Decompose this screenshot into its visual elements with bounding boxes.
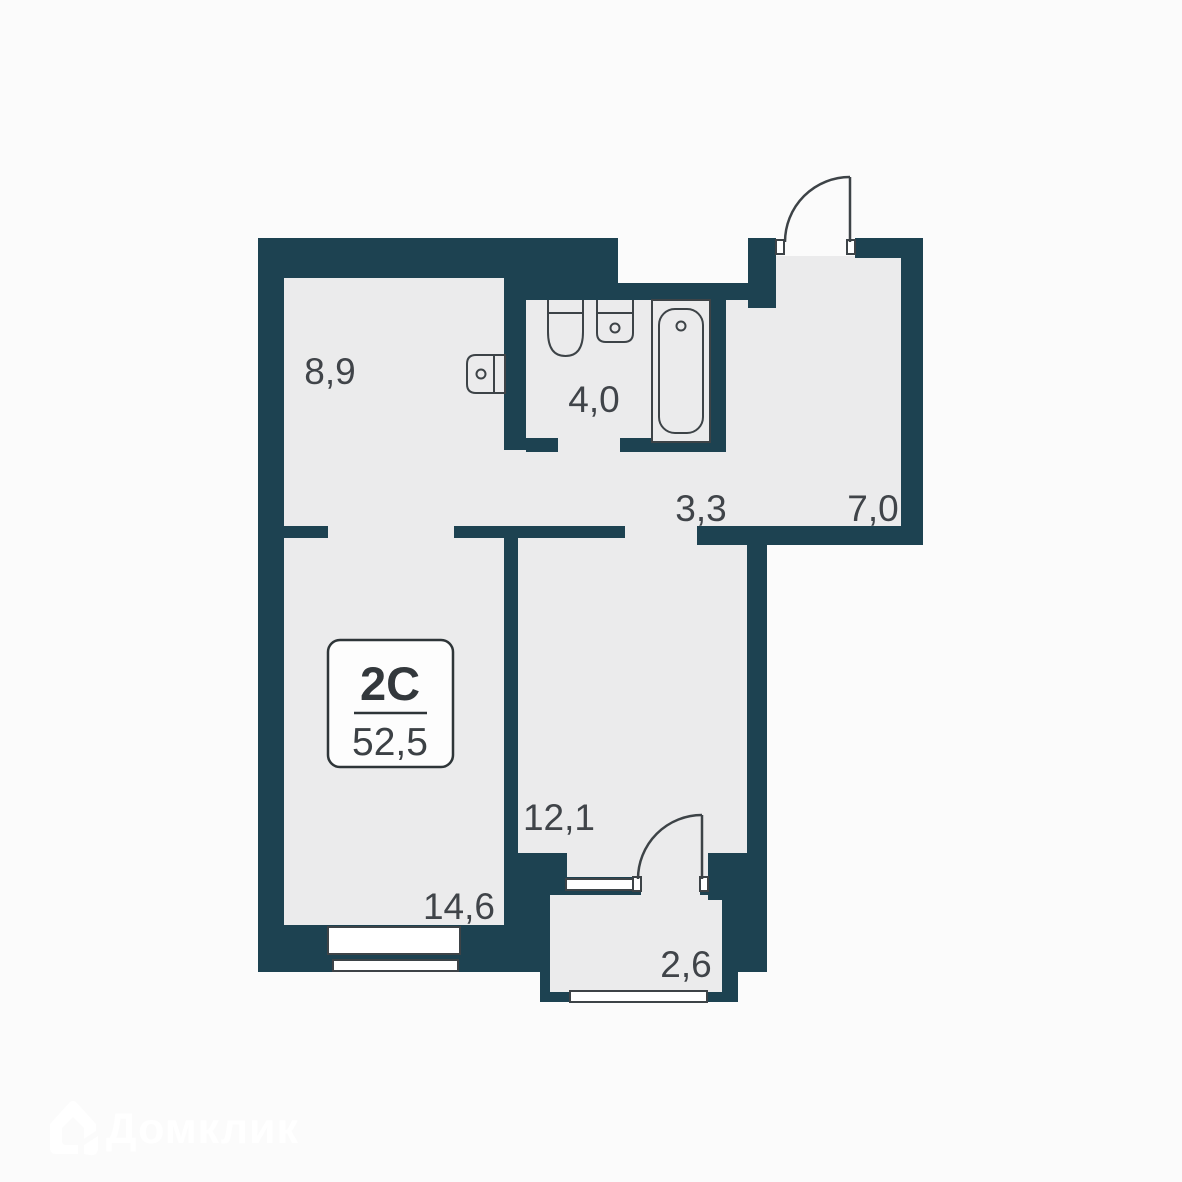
floor-plan-page: 8,9 4,0 3,3 7,0 12,1 14,6 2,6 2C 52,5 До… [0, 0, 1182, 1182]
watermark-label: Домклик [106, 1105, 299, 1153]
room-floor-kitchen [284, 278, 504, 526]
wall-segment [504, 526, 518, 895]
wall-segment [618, 283, 750, 300]
window-living-room [333, 960, 458, 971]
entrance-door-swing-icon [785, 177, 850, 242]
wall-segment [748, 238, 776, 308]
room-label-hallway: 3,3 [675, 488, 726, 529]
wall-segment [747, 545, 767, 853]
wall-segment [722, 900, 767, 972]
window-living-room-sill [328, 927, 460, 954]
wall-segment [284, 526, 328, 538]
plan-badge: 2C 52,5 [328, 640, 453, 767]
plan-badge-type: 2C [360, 657, 420, 710]
floor-plan-svg: 8,9 4,0 3,3 7,0 12,1 14,6 2,6 2C 52,5 До… [0, 0, 1182, 1182]
room-label-kitchen: 8,9 [304, 351, 355, 392]
door-jamb [633, 877, 641, 891]
wall-segment [901, 238, 923, 545]
room-label-living-room: 14,6 [423, 886, 495, 927]
room-label-balcony: 2,6 [660, 944, 711, 985]
window-bedroom-balcony [566, 879, 636, 890]
wall-segment [708, 853, 767, 900]
wall-segment [710, 300, 726, 452]
bathtub-icon [652, 300, 710, 442]
plan-badge-area: 52,5 [352, 721, 428, 764]
wall-segment [504, 895, 540, 972]
toilet-icon [548, 300, 583, 356]
domclick-house-icon [50, 1101, 98, 1155]
room-label-bedroom: 12,1 [523, 797, 595, 838]
wall-segment [454, 526, 625, 538]
door-jamb [847, 240, 855, 254]
door-jamb [700, 877, 708, 891]
watermark: Домклик [50, 1101, 299, 1155]
balcony-door-opening [641, 877, 700, 895]
bathroom-sink-icon [597, 300, 633, 342]
room-floor-hallway [504, 440, 768, 528]
wall-segment [504, 278, 526, 450]
room-label-entrance: 7,0 [847, 488, 898, 529]
room-label-bathroom: 4,0 [568, 379, 619, 420]
kitchen-sink-icon [467, 355, 505, 393]
window-balcony [570, 991, 707, 1002]
door-jamb [776, 240, 784, 254]
wall-segment [258, 238, 284, 972]
wall-segment [526, 238, 618, 300]
wall-segment [526, 438, 558, 452]
